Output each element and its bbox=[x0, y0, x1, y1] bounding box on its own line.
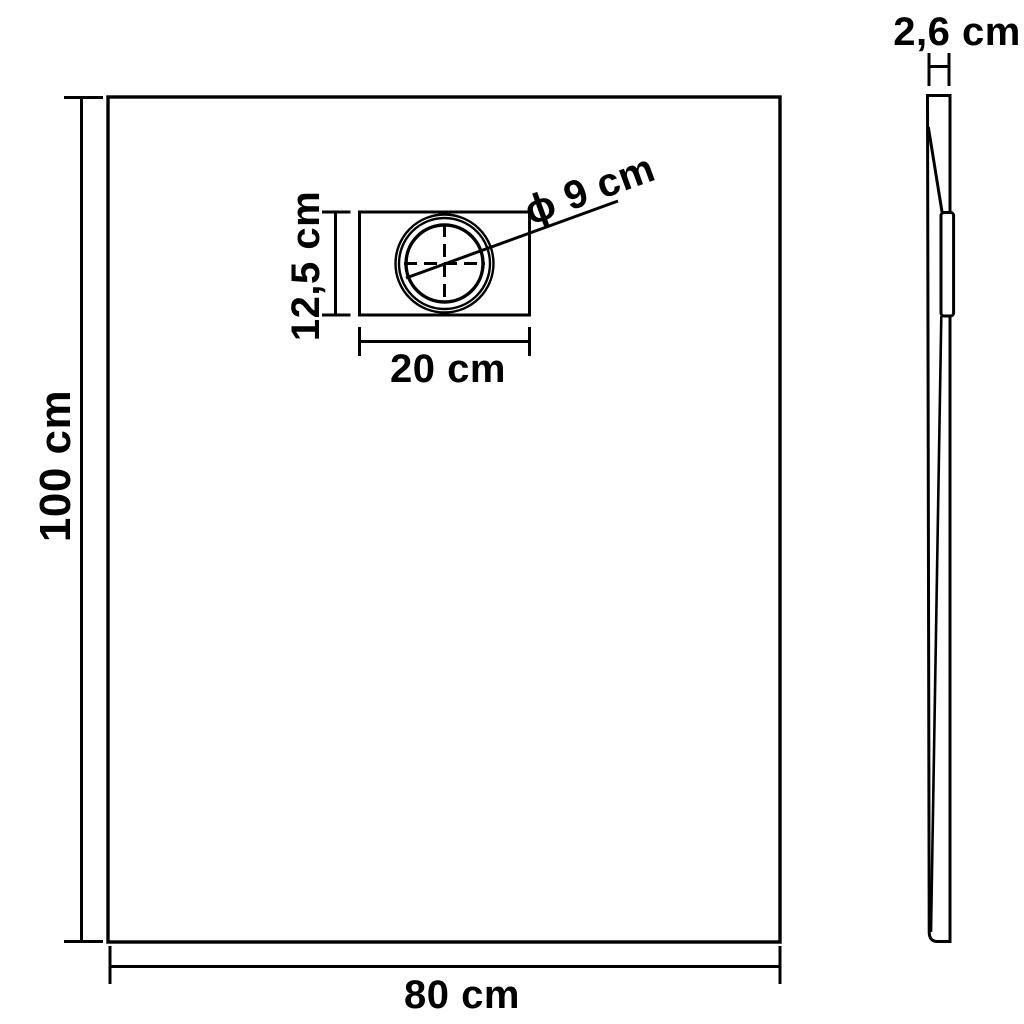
diagram-canvas: ϕ 9 cm 12,5 cm 20 cm 100 cm bbox=[0, 0, 1024, 1024]
drain-diameter-label: ϕ 9 cm bbox=[518, 146, 660, 234]
dimension-drain-height: 12,5 cm bbox=[284, 191, 351, 341]
drain-height-label: 12,5 cm bbox=[284, 191, 328, 341]
front-view: ϕ 9 cm 12,5 cm 20 cm 100 cm bbox=[31, 97, 780, 1017]
side-underside-line bbox=[931, 316, 941, 932]
side-view: 2,6 cm bbox=[893, 10, 1021, 942]
tray-height-label: 100 cm bbox=[31, 390, 80, 542]
side-surface-slope-line bbox=[928, 127, 942, 213]
tray-width-label: 80 cm bbox=[404, 973, 520, 1017]
dimension-drain-width: 20 cm bbox=[360, 327, 530, 391]
thickness-label: 2,6 cm bbox=[893, 10, 1021, 54]
side-drain-bump bbox=[941, 213, 954, 317]
dimension-thickness: 2,6 cm bbox=[893, 10, 1021, 86]
dimension-diagram: ϕ 9 cm 12,5 cm 20 cm 100 cm bbox=[0, 0, 1024, 1024]
drain-detail: ϕ 9 cm bbox=[360, 146, 661, 315]
dimension-height: 100 cm bbox=[31, 97, 103, 942]
dimension-width: 80 cm bbox=[110, 946, 780, 1017]
drain-width-label: 20 cm bbox=[390, 347, 506, 391]
